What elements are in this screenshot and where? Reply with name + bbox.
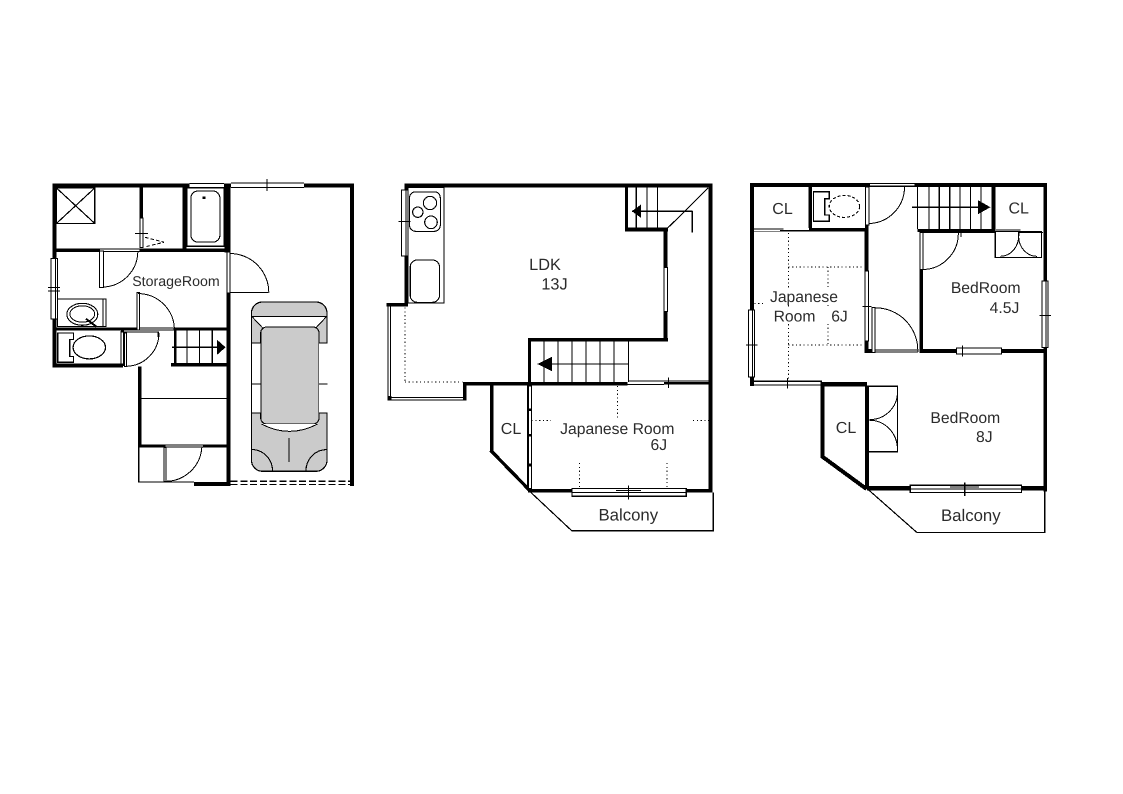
svg-text:BedRoom: BedRoom [930, 410, 1000, 427]
svg-text:Balcony: Balcony [598, 505, 658, 524]
svg-text:Japanese Room: Japanese Room [560, 421, 674, 438]
svg-text:CL: CL [772, 201, 793, 218]
svg-text:6J: 6J [651, 437, 668, 454]
svg-text:CL: CL [501, 421, 522, 438]
svg-text:13J: 13J [541, 276, 567, 294]
svg-text:Room: Room [774, 308, 816, 325]
svg-text:4.5J: 4.5J [990, 300, 1020, 317]
svg-text:8J: 8J [976, 429, 993, 446]
svg-text:Japanese: Japanese [770, 289, 838, 306]
svg-text:StorageRoom: StorageRoom [132, 274, 220, 290]
svg-text:BedRoom: BedRoom [951, 280, 1021, 297]
svg-text:CL: CL [1008, 201, 1029, 218]
svg-text:CL: CL [836, 420, 857, 437]
svg-text:Balcony: Balcony [941, 506, 1001, 525]
svg-text:LDK: LDK [529, 256, 561, 274]
svg-text:6J: 6J [831, 308, 848, 325]
